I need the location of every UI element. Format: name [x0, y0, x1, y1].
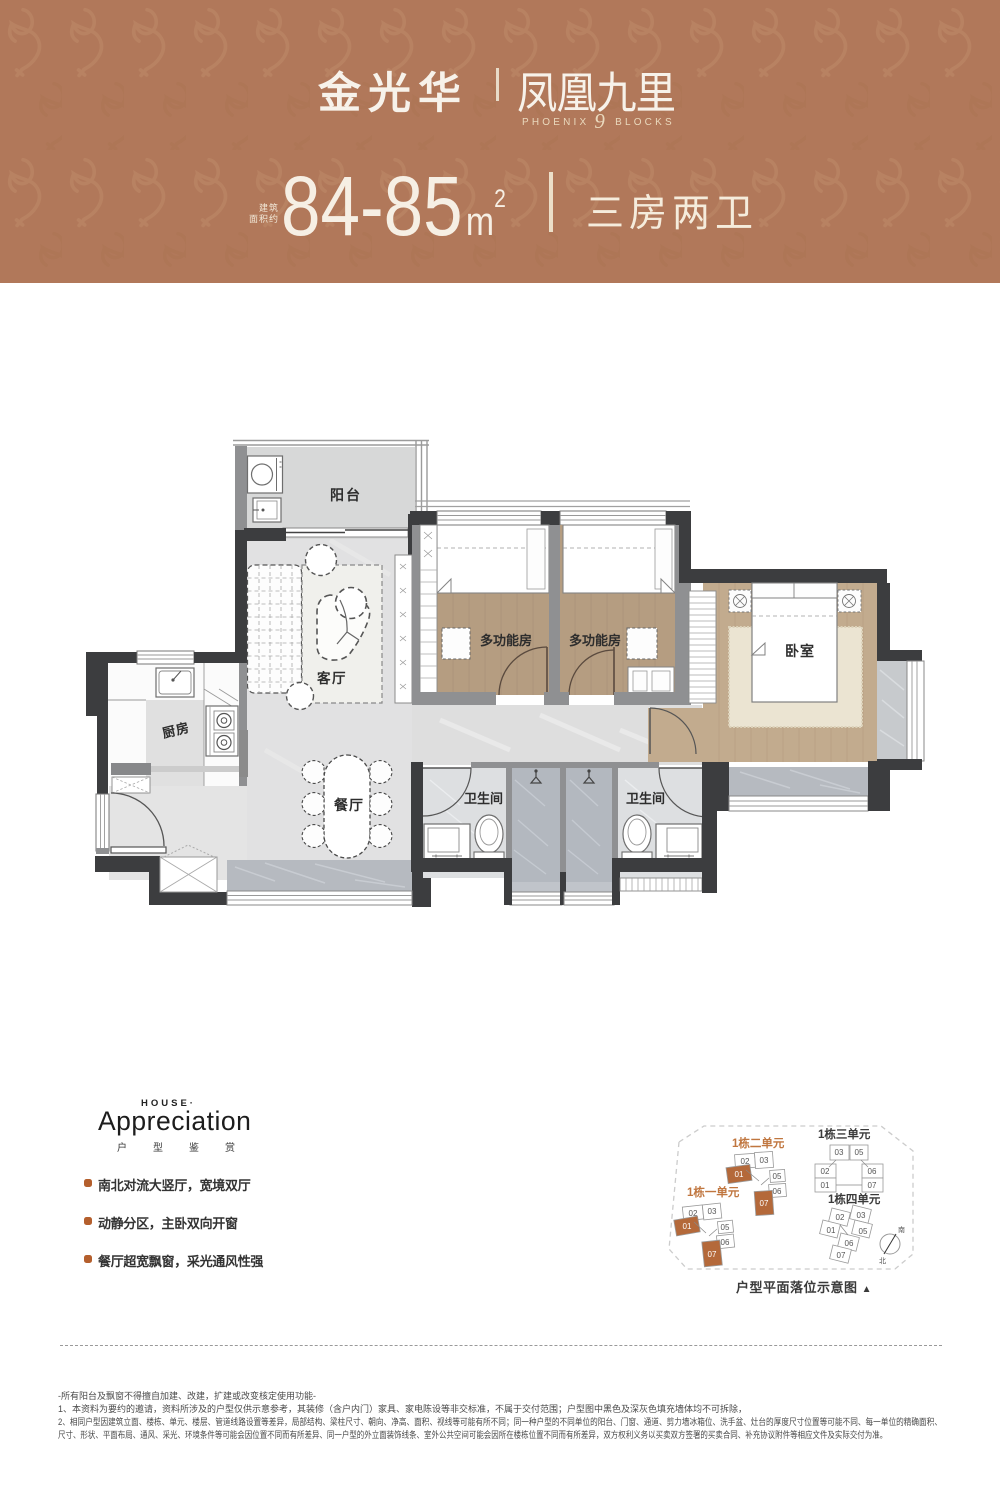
svg-text:03: 03 [857, 1211, 866, 1220]
svg-text:01: 01 [735, 1170, 744, 1179]
svg-text:02: 02 [689, 1209, 698, 1218]
svg-text:南: 南 [898, 1225, 905, 1234]
svg-text:07: 07 [837, 1251, 846, 1260]
svg-text:卫生间: 卫生间 [626, 791, 665, 806]
svg-text:01: 01 [827, 1226, 836, 1235]
svg-text:02: 02 [741, 1157, 750, 1166]
svg-text:1栋三单元: 1栋三单元 [818, 1127, 871, 1141]
svg-text:07: 07 [708, 1250, 717, 1259]
svg-text:06: 06 [845, 1239, 854, 1248]
svg-text:06: 06 [868, 1167, 877, 1176]
svg-text:05: 05 [859, 1227, 868, 1236]
svg-text:1栋四单元: 1栋四单元 [828, 1192, 881, 1206]
svg-text:03: 03 [708, 1207, 717, 1216]
svg-text:07: 07 [868, 1181, 877, 1190]
svg-text:01: 01 [683, 1222, 692, 1231]
svg-text:06: 06 [773, 1187, 782, 1196]
svg-text:03: 03 [835, 1148, 844, 1157]
svg-text:07: 07 [760, 1199, 769, 1208]
svg-text:05: 05 [773, 1172, 782, 1181]
svg-text:01: 01 [821, 1181, 830, 1190]
svg-text:1栋一单元: 1栋一单元 [687, 1185, 740, 1199]
svg-text:北: 北 [879, 1257, 886, 1265]
svg-text:1栋二单元: 1栋二单元 [732, 1136, 785, 1150]
svg-text:03: 03 [760, 1156, 769, 1165]
svg-text:卫生间: 卫生间 [464, 791, 503, 806]
svg-text:05: 05 [855, 1148, 864, 1157]
svg-text:06: 06 [721, 1238, 730, 1247]
svg-text:02: 02 [836, 1213, 845, 1222]
svg-text:05: 05 [721, 1223, 730, 1232]
svg-text:02: 02 [821, 1167, 830, 1176]
